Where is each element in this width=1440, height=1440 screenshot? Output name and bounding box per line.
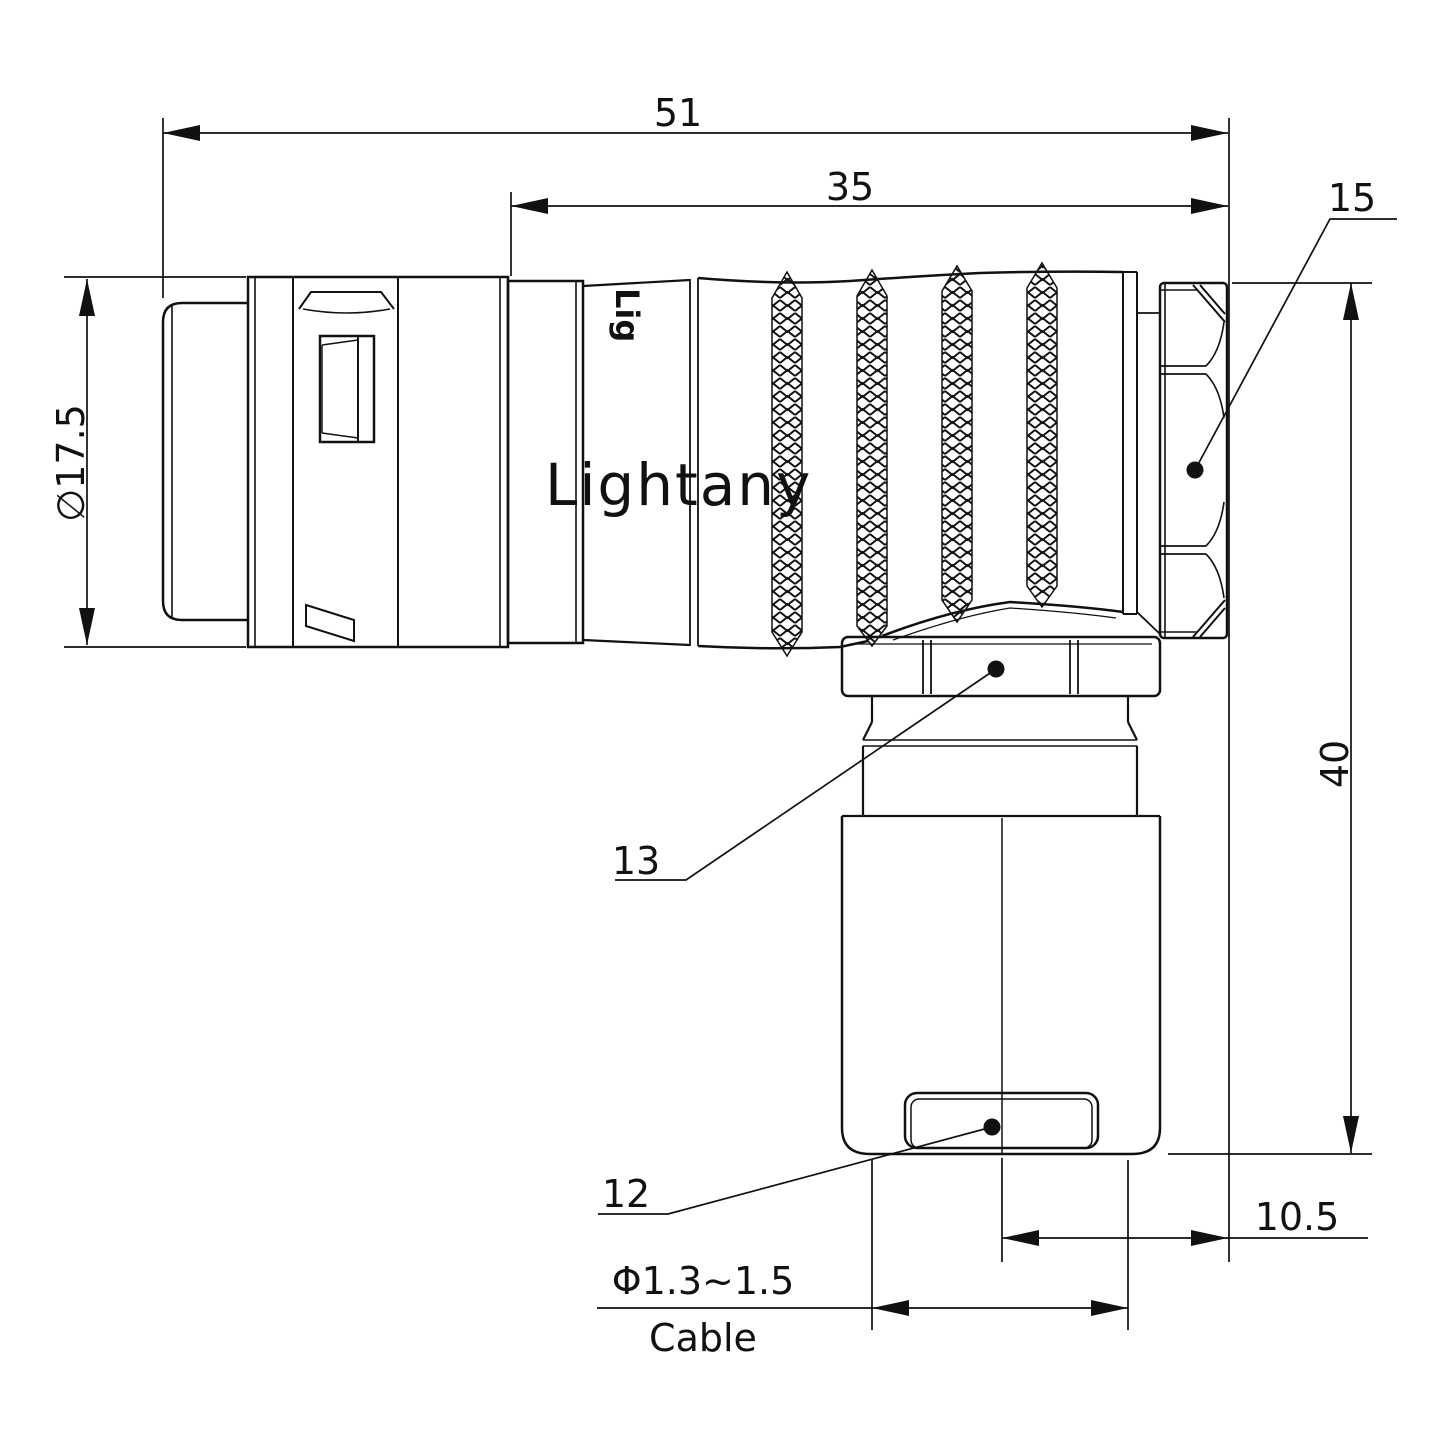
leader-13 bbox=[615, 669, 996, 880]
rear-ring bbox=[1123, 272, 1137, 614]
knurl-band-2 bbox=[857, 270, 887, 646]
grip-top-edge bbox=[698, 272, 1123, 283]
leader-dot-15 bbox=[1187, 462, 1204, 479]
dim-text-cable-diameter: Φ1.3~1.5 bbox=[612, 1259, 795, 1303]
arrow-51-right bbox=[1191, 125, 1228, 141]
ring-to-nut-links bbox=[1137, 313, 1160, 634]
back-nut-facet-lower bbox=[1160, 546, 1206, 554]
back-nut-facet-upper-curves bbox=[1206, 322, 1224, 418]
ext-lines-cable bbox=[872, 1160, 1128, 1330]
latch-top-tab bbox=[299, 292, 394, 309]
back-nut-facet-lower-curves bbox=[1206, 502, 1224, 598]
leader-dot-13 bbox=[988, 661, 1005, 678]
drawing-canvas: Lightany bbox=[0, 0, 1440, 1440]
latch-window-bevel bbox=[322, 340, 358, 438]
dimension-arrowheads bbox=[79, 125, 1359, 1316]
dim-text-10-5: 10.5 bbox=[1255, 1195, 1340, 1239]
ext-lines-height-40 bbox=[1168, 283, 1372, 1154]
arrow-10-5-left bbox=[1002, 1230, 1039, 1246]
knurl-band-3 bbox=[942, 266, 972, 622]
clamp-nut-facet-right bbox=[1070, 640, 1078, 694]
leader-dot-12 bbox=[984, 1119, 1001, 1136]
knurl-band-1 bbox=[772, 272, 802, 656]
arrow-cable-left bbox=[872, 1300, 909, 1316]
outer-shell bbox=[248, 277, 508, 647]
arrow-35-left bbox=[511, 198, 548, 214]
dim-text-17-5: ∅17.5 bbox=[49, 404, 93, 522]
connector-dimension-drawing: Lightany bbox=[0, 0, 1440, 1440]
leader-12 bbox=[598, 1127, 992, 1214]
grip-elbow-curve-inner bbox=[893, 608, 1116, 640]
clamp-nut-facet-left bbox=[923, 640, 931, 694]
arrow-40-top bbox=[1343, 283, 1359, 320]
latch-top-tab-arc bbox=[303, 309, 390, 313]
back-nut-top-chamfer bbox=[1193, 285, 1225, 322]
callout-text-15: 15 bbox=[1328, 176, 1376, 220]
upper-barrel-sides bbox=[863, 746, 1137, 816]
dim-text-51: 51 bbox=[654, 91, 702, 135]
arrow-cable-right bbox=[1091, 1300, 1128, 1316]
dim-text-40: 40 bbox=[1313, 740, 1357, 788]
neck-sides bbox=[872, 696, 1128, 722]
dim-text-35: 35 bbox=[826, 165, 874, 209]
arrow-17-5-top bbox=[79, 279, 95, 316]
leader-15 bbox=[1195, 219, 1397, 470]
plug-vertical-leg bbox=[842, 637, 1160, 1154]
arrow-51-left bbox=[163, 125, 200, 141]
latch-window bbox=[320, 336, 374, 442]
knurl-bands bbox=[772, 263, 1057, 656]
flare-rings bbox=[863, 740, 1137, 746]
body-marking-text: Lig bbox=[608, 288, 646, 342]
arrow-35-right bbox=[1191, 198, 1228, 214]
callout-text-12: 12 bbox=[602, 1172, 650, 1216]
back-nut-facet-upper bbox=[1160, 366, 1206, 374]
back-nut-bottom-chamfer bbox=[1193, 600, 1225, 637]
arrow-17-5-bottom bbox=[79, 608, 95, 645]
latch-bottom-tab bbox=[306, 605, 354, 641]
knurl-band-4 bbox=[1027, 263, 1057, 607]
back-nut bbox=[1160, 283, 1227, 638]
callout-text-13: 13 bbox=[612, 839, 660, 883]
dimension-lines bbox=[64, 118, 1397, 1330]
arrow-40-bottom bbox=[1343, 1116, 1359, 1153]
dim-text-cable-word: Cable bbox=[649, 1316, 757, 1360]
main-barrel bbox=[842, 816, 1160, 1154]
arrow-10-5-right bbox=[1191, 1230, 1228, 1246]
front-cap-outline bbox=[163, 303, 248, 620]
